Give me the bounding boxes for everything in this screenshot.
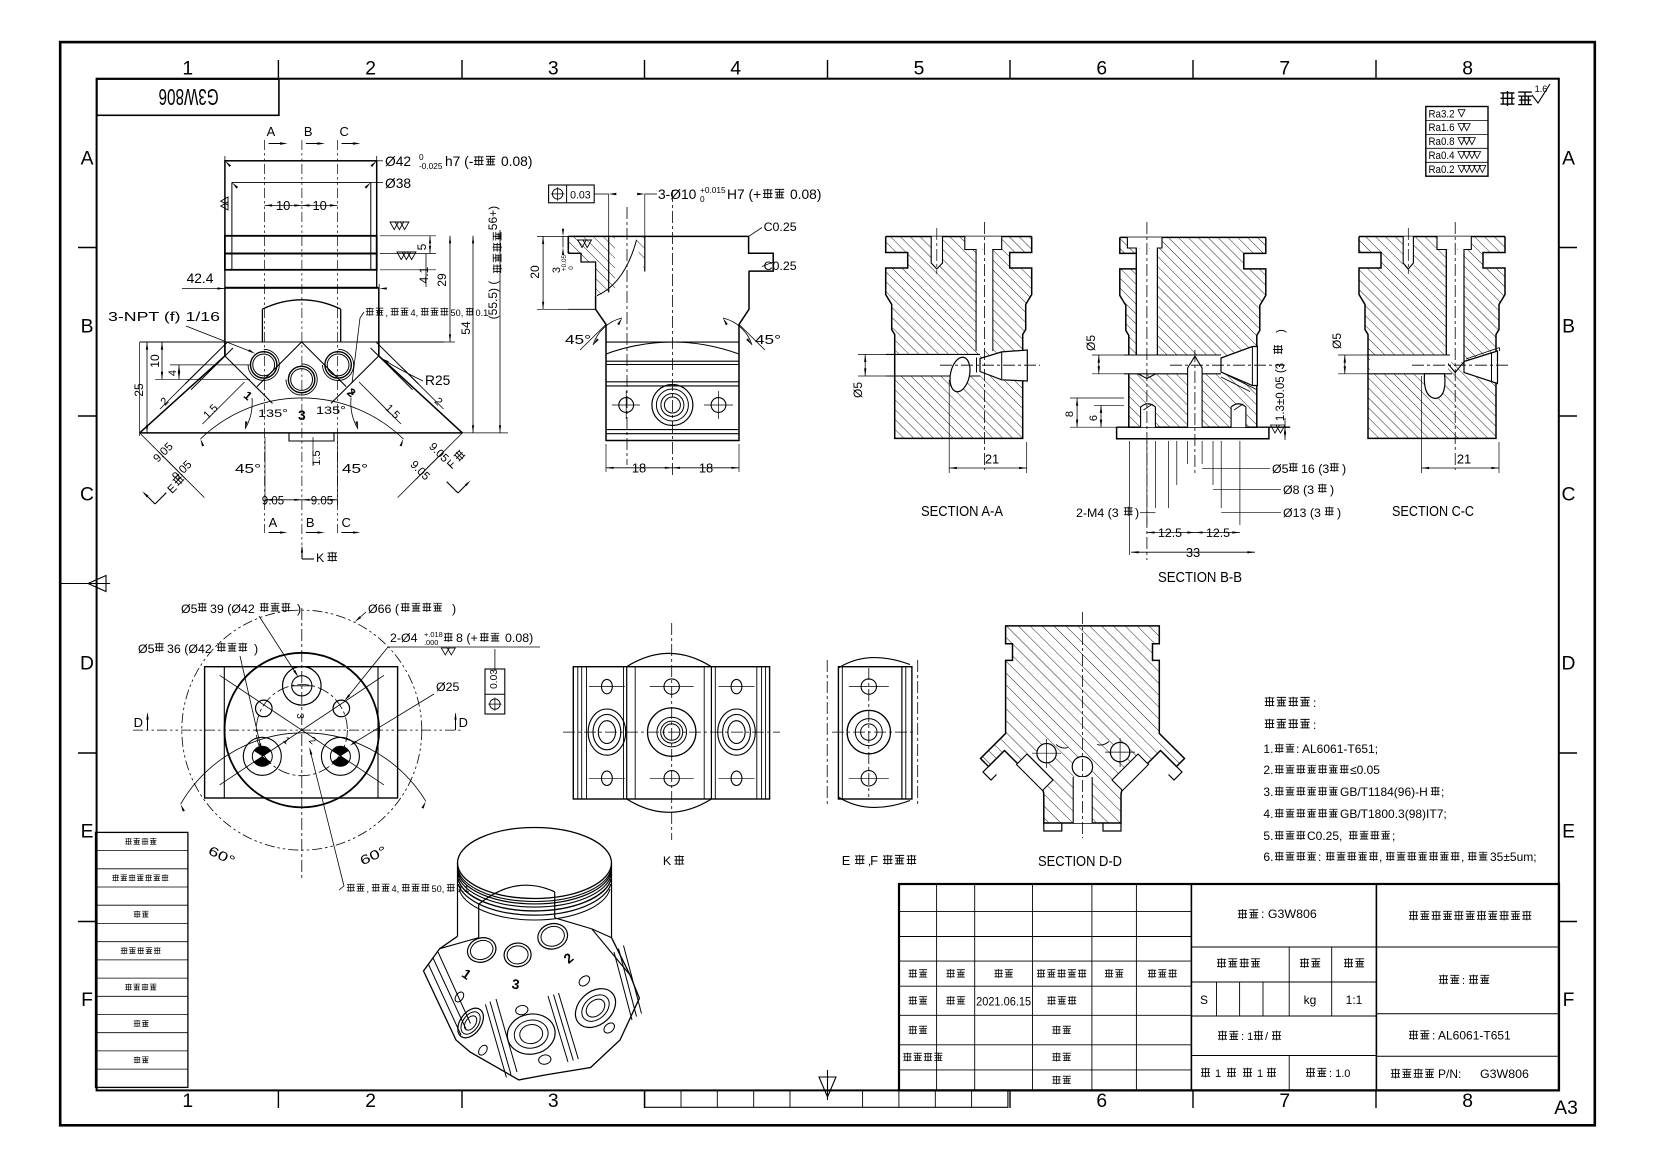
svg-text:21: 21 [1457,452,1471,467]
svg-text:3: 3 [548,1091,559,1112]
svg-text:1: 1 [1215,1068,1221,1080]
svg-text:2021.06.15: 2021.06.15 [976,997,1031,1009]
svg-text:135°: 135° [316,405,346,417]
svg-text:;: ; [1392,829,1395,843]
svg-text:D: D [1562,654,1576,675]
svg-text:Ø13 (3: Ø13 (3 [1283,506,1321,520]
svg-text:C0.25,: C0.25, [1307,829,1342,843]
svg-text:Ø5: Ø5 [1330,333,1344,349]
svg-text:K: K [316,551,325,565]
svg-text:,: , [386,308,389,318]
svg-text:): ) [1275,329,1287,333]
svg-text:Ø5: Ø5 [138,642,155,656]
svg-text:6: 6 [1096,1091,1107,1112]
svg-text:3: 3 [548,59,559,80]
svg-text:1.5: 1.5 [311,450,323,465]
svg-text:35±5um;: 35±5um; [1490,850,1537,864]
svg-text:≤0.05: ≤0.05 [1350,763,1380,777]
svg-text:8: 8 [1462,59,1473,80]
svg-text:): ) [297,602,301,616]
svg-text:10: 10 [148,354,162,368]
svg-text:A: A [1562,149,1575,170]
svg-text:2.: 2. [1263,763,1273,777]
svg-text:8: 8 [1064,411,1076,417]
svg-text:2-M4 (3: 2-M4 (3 [1076,506,1119,520]
svg-text:39 (Ø42: 39 (Ø42 [210,602,255,616]
svg-text:3: 3 [294,713,305,719]
svg-text:D: D [80,654,94,675]
svg-text:kg: kg [1304,993,1317,1007]
svg-text:3: 3 [298,408,306,423]
svg-text:H7 (+: H7 (+ [727,187,761,202]
svg-text::: : [1462,975,1465,987]
svg-text:E: E [1562,822,1575,843]
svg-text:Ra0.4: Ra0.4 [1429,150,1455,162]
svg-text:): ) [452,602,456,616]
svg-text:6: 6 [1088,415,1100,421]
svg-text:45°: 45° [565,332,591,347]
svg-text::: : [1313,718,1316,732]
svg-text:A: A [269,515,278,530]
svg-text:Ø42: Ø42 [385,154,411,169]
svg-text:Ra0.8: Ra0.8 [1429,136,1455,148]
svg-text:4: 4 [167,370,179,376]
svg-text:135°: 135° [258,408,288,420]
svg-text:45°: 45° [755,332,781,347]
svg-text:-0.025: -0.025 [419,161,443,171]
svg-text:9.05: 9.05 [262,496,284,508]
svg-text:4,: 4, [411,308,419,318]
svg-text:1: 1 [1257,1068,1263,1080]
svg-text:4: 4 [730,59,741,80]
svg-text:Ra1.6: Ra1.6 [1429,122,1455,134]
svg-text:SECTION B-B: SECTION B-B [1158,570,1242,586]
svg-text:): ) [1337,506,1341,520]
svg-text:Ø5: Ø5 [1272,462,1289,476]
svg-text:12.5: 12.5 [1206,526,1230,540]
svg-text:GB/T1184(96)-H: GB/T1184(96)-H [1340,785,1428,799]
svg-text:45°: 45° [235,461,261,476]
svg-text:C0.25: C0.25 [764,220,797,234]
svg-text:A: A [267,124,276,139]
svg-text:3-Ø10: 3-Ø10 [658,187,697,202]
svg-text:25: 25 [132,383,146,397]
svg-text:Ø25: Ø25 [436,680,460,694]
svg-text:4,: 4, [392,884,400,894]
svg-text:10: 10 [313,198,327,213]
svg-text:0.08): 0.08) [505,631,533,645]
svg-text:: 1: : 1 [1241,1031,1253,1043]
svg-text:7: 7 [1279,59,1290,80]
svg-text:1:1: 1:1 [1346,993,1363,1007]
svg-text:0.08): 0.08) [501,154,532,169]
svg-text:): ) [1330,483,1334,497]
svg-text:A: A [81,149,94,170]
svg-text:B: B [81,317,94,338]
svg-text:5: 5 [415,243,429,250]
svg-text:0.03: 0.03 [489,669,500,689]
svg-text:54: 54 [459,321,473,335]
svg-text:21: 21 [985,452,999,467]
svg-text:45°: 45° [342,461,368,476]
svg-text:36 (Ø42: 36 (Ø42 [167,642,212,656]
svg-text:,: , [367,884,370,894]
svg-text:42.4: 42.4 [187,271,214,286]
svg-text:5: 5 [914,59,925,80]
svg-text:0: 0 [700,194,705,204]
svg-text:1: 1 [182,59,193,80]
svg-text:D: D [134,715,143,730]
svg-text:Ra3.2: Ra3.2 [1429,108,1455,120]
svg-text:P/N:: P/N: [1438,1067,1461,1081]
svg-text:A3: A3 [1554,1098,1578,1119]
svg-text:K: K [663,854,672,868]
svg-text:56+): 56+) [486,206,500,230]
svg-text:0.08): 0.08) [790,187,821,202]
svg-text:D: D [459,715,468,730]
svg-text::: : [1318,850,1321,864]
svg-text:C: C [342,515,351,530]
svg-text:29: 29 [435,273,449,287]
svg-text:18: 18 [632,461,646,476]
svg-text:,: , [1461,850,1464,864]
svg-text:6.: 6. [1263,850,1273,864]
svg-text:2: 2 [365,1091,376,1112]
svg-text:(55.5) (: (55.5) ( [486,281,500,320]
svg-text:6: 6 [1096,59,1107,80]
svg-text:E: E [81,822,94,843]
svg-text:B: B [304,124,313,139]
svg-text:Ø5: Ø5 [851,382,865,398]
svg-text::: : [1313,696,1316,710]
svg-text:12.5: 12.5 [1158,526,1182,540]
svg-text:: G3W806: : G3W806 [1261,907,1317,921]
svg-text:1: 1 [182,1091,193,1112]
svg-text:50,: 50, [451,308,464,318]
svg-text:8: 8 [1462,1091,1473,1112]
svg-text:: AL6061-T651;: : AL6061-T651; [1296,742,1378,756]
svg-text:.000: .000 [424,638,438,647]
svg-text:2-Ø4: 2-Ø4 [390,631,418,645]
svg-text:7: 7 [1279,1091,1290,1112]
svg-text:4.: 4. [1263,807,1273,821]
svg-text:0.03: 0.03 [570,190,591,202]
svg-text:Ø5: Ø5 [1084,335,1098,351]
svg-text:50,: 50, [432,884,445,894]
svg-text:): ) [1342,462,1346,476]
svg-text:S: S [1200,993,1208,1007]
svg-text:: AL6061-T651: : AL6061-T651 [1432,1029,1511,1043]
svg-text:: 1.0: : 1.0 [1329,1068,1350,1080]
svg-text:18: 18 [699,461,713,476]
svg-text:GB/T1800.3(98)IT7;: GB/T1800.3(98)IT7; [1340,807,1447,821]
svg-text:8 (+: 8 (+ [456,631,478,645]
svg-text:G3W806: G3W806 [159,84,219,110]
svg-text:F: F [870,853,878,868]
svg-text:+0.05: +0.05 [561,254,568,271]
svg-text:Ra0.2: Ra0.2 [1429,164,1455,176]
svg-text:G3W806: G3W806 [1480,1067,1529,1081]
svg-text:F: F [81,990,93,1011]
svg-text:Ø5: Ø5 [181,602,198,616]
svg-text:C: C [340,124,349,139]
svg-text:33: 33 [1186,545,1200,560]
svg-text:): ) [1135,506,1139,520]
svg-text:SECTION C-C: SECTION C-C [1392,504,1474,520]
svg-text:1.: 1. [1263,742,1273,756]
svg-text:3-NPT (f) 1/16: 3-NPT (f) 1/16 [108,309,220,324]
svg-text:Ø38: Ø38 [385,176,411,191]
svg-text:1.6: 1.6 [1535,84,1548,94]
svg-text:9.05: 9.05 [311,496,333,508]
svg-text:1.3±0.05 (3: 1.3±0.05 (3 [1275,363,1287,421]
svg-text:h7 (-: h7 (- [445,154,473,169]
svg-text:;: ; [1441,785,1444,799]
svg-text:4.1: 4.1 [417,266,431,283]
svg-text:Ø8 (3: Ø8 (3 [1283,483,1314,497]
svg-text:SECTION A-A: SECTION A-A [921,504,1003,520]
svg-text:20: 20 [528,265,542,279]
svg-text:10: 10 [276,198,290,213]
svg-text:F: F [1563,990,1575,1011]
svg-text:3.: 3. [1263,785,1273,799]
svg-text:C: C [1562,485,1576,506]
svg-text:B: B [306,515,315,530]
svg-text:R25: R25 [425,373,451,388]
svg-text:E: E [842,853,851,868]
svg-text:B: B [1562,317,1575,338]
svg-text:2: 2 [365,59,376,80]
svg-text:C0.25: C0.25 [764,259,797,273]
svg-text:16 (3: 16 (3 [1301,462,1329,476]
svg-text:,: , [1379,850,1382,864]
svg-text:5.: 5. [1263,829,1273,843]
svg-text:0: 0 [568,266,575,270]
svg-text:Ø66 (: Ø66 ( [368,602,400,616]
svg-text:SECTION D-D: SECTION D-D [1038,854,1122,870]
svg-text:): ) [254,642,258,656]
svg-text:C: C [80,485,94,506]
